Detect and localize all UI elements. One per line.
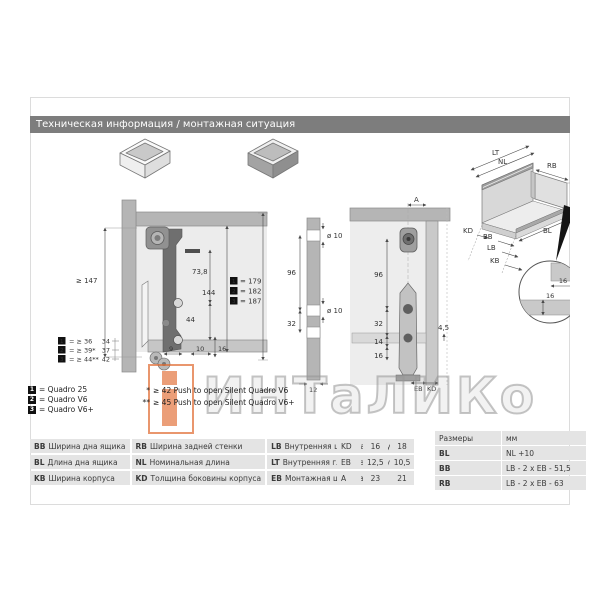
- legend-item: 1 = Quadro 25: [28, 385, 94, 394]
- dim-73-8: 73,8: [192, 268, 208, 276]
- dim-96-section: 96: [374, 271, 383, 279]
- svg-text:2: 2: [232, 289, 236, 295]
- svg-text:42: 42: [102, 356, 110, 364]
- legend-num-badge: 1: [28, 386, 36, 394]
- legend-item: 2 = Quadro V6: [28, 395, 94, 404]
- svg-text:3: 3: [60, 357, 64, 363]
- detail-dim-16h: 16: [559, 277, 567, 285]
- pilot-height-stack: 1 = ≥ 36 34 2 = ≥ 39* 37 3 = ≥ 44** 42: [58, 337, 119, 364]
- svg-text:3: 3: [232, 299, 236, 305]
- svg-text:= ≥ 39*: = ≥ 39*: [69, 347, 96, 355]
- iso-view-drawing: LT NL RB 144 BL KD BB LB KB: [463, 146, 570, 323]
- dia-10-top: ø 10: [327, 232, 342, 240]
- svg-text:= 187: = 187: [240, 298, 261, 306]
- dim-9: 9: [169, 345, 173, 353]
- product-legend: 1 = Quadro 25 2 = Quadro V6 3 = Quadro V…: [28, 385, 94, 415]
- dim-4-5: 4,5: [438, 324, 449, 332]
- table-row: A 23 21: [337, 471, 414, 485]
- drawer-open-icon: [120, 139, 170, 178]
- values-table: KD 16 18 EB 12,5 10,5 A 23 21: [335, 437, 416, 487]
- dim-a: A: [414, 196, 419, 204]
- dia-10-mid: ø 10: [327, 307, 342, 315]
- label-bb: BB: [483, 233, 493, 241]
- catalog-page: Техническая информация / монтажная ситуа…: [0, 0, 600, 600]
- formulas-table: Размеры мм BL NL +10 BB LB - 2 x EB - 51…: [434, 430, 587, 491]
- dim-16-section: 16: [374, 352, 383, 360]
- legend-num-badge: 3: [28, 406, 36, 414]
- panel-view-drawing: 96 32 ø 10 ø 10 12: [287, 218, 342, 394]
- dim-10: 10: [196, 345, 204, 353]
- dim-32-panel: 32: [287, 320, 296, 328]
- dim-144: 144: [202, 289, 216, 297]
- svg-text:= ≥ 36: = ≥ 36: [69, 338, 92, 346]
- dim-min-height: ≥ 147: [76, 277, 97, 285]
- dim-12-panel: 12: [309, 386, 317, 394]
- label-eb: EB: [414, 385, 423, 393]
- table-header-row: Размеры мм: [435, 431, 586, 445]
- label-kd-iso: KD: [463, 227, 473, 235]
- legend-num-badge: 2: [28, 396, 36, 404]
- label-kb: KB: [490, 257, 500, 265]
- svg-text:= ≥ 44**: = ≥ 44**: [69, 356, 100, 364]
- svg-text:34: 34: [102, 338, 110, 346]
- dim-16: 16: [218, 345, 226, 353]
- label-nl: NL: [498, 158, 507, 166]
- footnote: * ≥ 42 Push to open Silent Quadro V6: [138, 384, 295, 396]
- detail-dim-16v: 16: [546, 292, 554, 300]
- technical-drawings: ≥ 147 73,8 144 44 9 10 16 1 = 179 2: [30, 133, 570, 433]
- table-row: KD 16 18: [337, 439, 414, 453]
- page-title: Техническая информация / монтажная ситуа…: [36, 119, 295, 130]
- svg-text:37: 37: [102, 347, 110, 355]
- heights-legend: 1 = 179 2 = 182 3 = 187: [230, 277, 261, 306]
- section-view-drawing: A 96 32 14 16 4,5 EB KD: [350, 196, 450, 393]
- dim-32-section: 32: [374, 320, 383, 328]
- footnotes: * ≥ 42 Push to open Silent Quadro V6 ** …: [138, 384, 295, 408]
- label-bl: BL: [543, 227, 552, 235]
- dim-96-panel: 96: [287, 269, 296, 277]
- label-lb: LB: [487, 244, 496, 252]
- svg-text:= 179: = 179: [240, 278, 261, 286]
- svg-text:= 182: = 182: [240, 288, 261, 296]
- side-view-drawing: ≥ 147 73,8 144 44 9 10 16 1 = 179 2: [58, 200, 268, 372]
- dim-14-section: 14: [374, 338, 383, 346]
- svg-text:1: 1: [60, 339, 64, 345]
- table-row: RB LB - 2 x EB - 63: [435, 476, 586, 490]
- label-lt: LT: [492, 149, 500, 157]
- legend-item: 3 = Quadro V6+: [28, 405, 94, 414]
- table-row: BB LB - 2 x EB - 51,5: [435, 461, 586, 475]
- section-header: Техническая информация / монтажная ситуа…: [30, 116, 570, 133]
- label-kd: KD: [427, 385, 436, 393]
- footnote: ** ≥ 45 Push to open Silent Quadro V6+: [138, 396, 295, 408]
- svg-text:2: 2: [60, 348, 64, 354]
- drawer-shaded-icon: [248, 139, 298, 178]
- table-row: EB 12,5 10,5: [337, 455, 414, 469]
- table-row: BL NL +10: [435, 446, 586, 460]
- label-rb: RB: [547, 162, 557, 170]
- dim-44: 44: [186, 316, 195, 324]
- svg-text:1: 1: [232, 279, 236, 285]
